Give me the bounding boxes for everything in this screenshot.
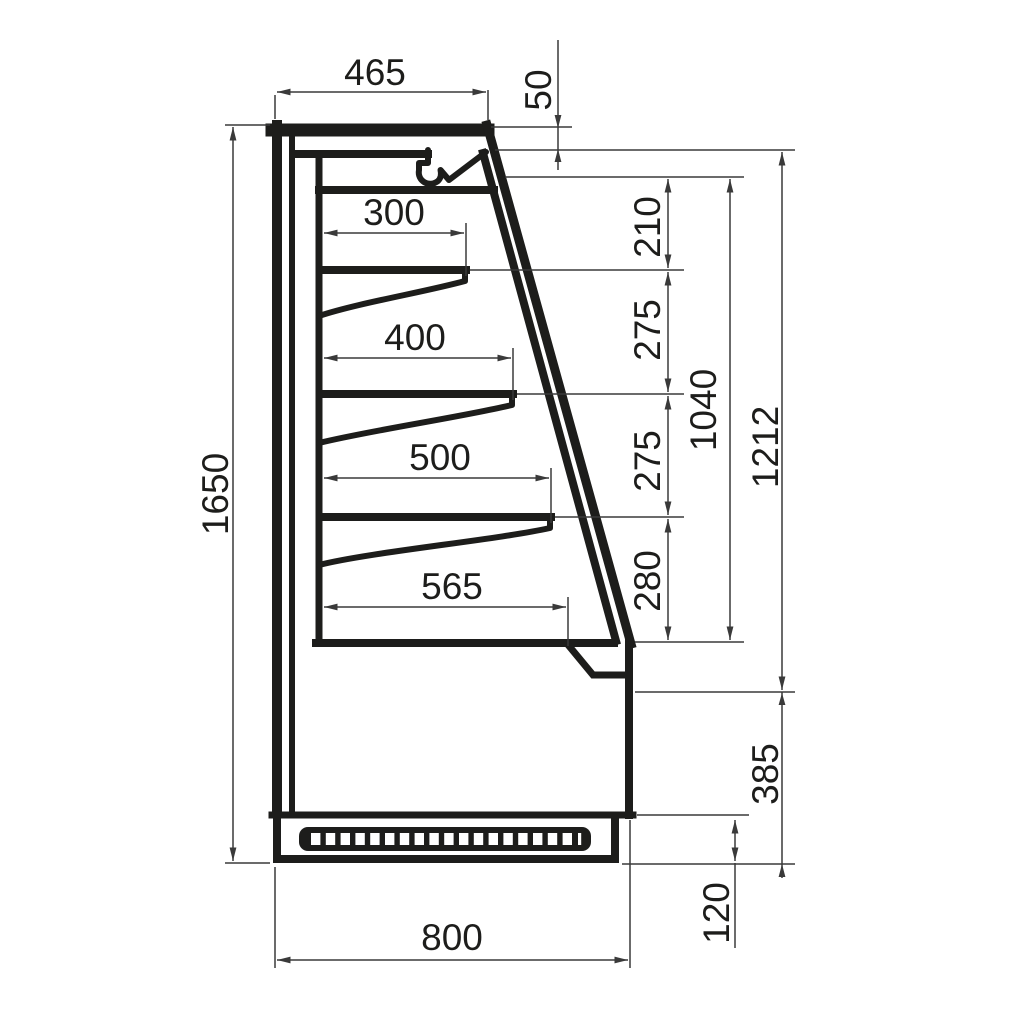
dim-label-800: 800 — [421, 917, 483, 958]
grille-slot — [385, 833, 394, 845]
grille-slot — [563, 833, 572, 845]
dim-top-depth: 465 — [275, 52, 488, 120]
grille-slot — [548, 833, 557, 845]
dim-label-565: 565 — [421, 566, 483, 607]
grille-slot — [578, 833, 581, 845]
dim-label-120: 120 — [696, 882, 737, 944]
dim-lower-front-height: 385 — [622, 692, 795, 878]
dim-label-400: 400 — [384, 317, 446, 358]
dim-label-465: 465 — [344, 52, 406, 93]
grille-slot — [489, 833, 498, 845]
dim-label-300: 300 — [363, 192, 425, 233]
dim-label-500: 500 — [409, 437, 471, 478]
dim-overall-height: 1650 — [195, 125, 270, 863]
dim-label-385: 385 — [745, 743, 786, 805]
shelf-3-underside — [319, 519, 550, 565]
dim-label-1650: 1650 — [195, 453, 236, 535]
dim-shelf-2-depth: 400 — [324, 317, 513, 400]
dim-label-280: 280 — [627, 550, 668, 612]
dim-label-275-lower: 275 — [627, 430, 668, 492]
dim-shelf-3-depth: 500 — [324, 437, 551, 523]
shelf-1-underside — [319, 272, 465, 316]
dim-label-275-upper: 275 — [627, 299, 668, 361]
dim-label-1212: 1212 — [745, 406, 786, 488]
grille-slot — [503, 833, 512, 845]
drawing-sheet: 465 50 1650 300 400 500 565 — [0, 0, 1024, 1024]
grille-slot — [415, 833, 424, 845]
dim-label-50: 50 — [518, 69, 559, 110]
deck-front-step — [569, 646, 629, 675]
dim-deck-depth: 565 — [324, 566, 568, 646]
vent-grille — [299, 827, 591, 851]
dim-opening-height: 1040 — [683, 179, 730, 640]
grille-slot — [341, 833, 350, 845]
grille-slot — [355, 833, 364, 845]
grille-slot — [311, 833, 320, 845]
dim-label-1040: 1040 — [683, 369, 724, 451]
dim-shelf-1-depth: 300 — [324, 192, 466, 276]
grille-slot — [326, 833, 335, 845]
technical-drawing: 465 50 1650 300 400 500 565 — [0, 0, 1024, 1024]
grille-slot — [474, 833, 483, 845]
grille-slot — [533, 833, 542, 845]
grille-slot — [370, 833, 379, 845]
dim-canopy-drop: 50 — [491, 40, 795, 170]
dim-label-210: 210 — [627, 196, 668, 258]
shelf-2-underside — [319, 396, 512, 443]
grille-slot — [459, 833, 468, 845]
cabinet-outline — [272, 125, 633, 859]
air-outlet-notch — [419, 150, 486, 184]
grille-slot — [518, 833, 527, 845]
grille-slot — [400, 833, 409, 845]
dim-plinth-height: 120 — [637, 815, 749, 948]
glass-front-outer — [487, 125, 631, 644]
grille-slot — [429, 833, 438, 845]
grille-slot — [444, 833, 453, 845]
